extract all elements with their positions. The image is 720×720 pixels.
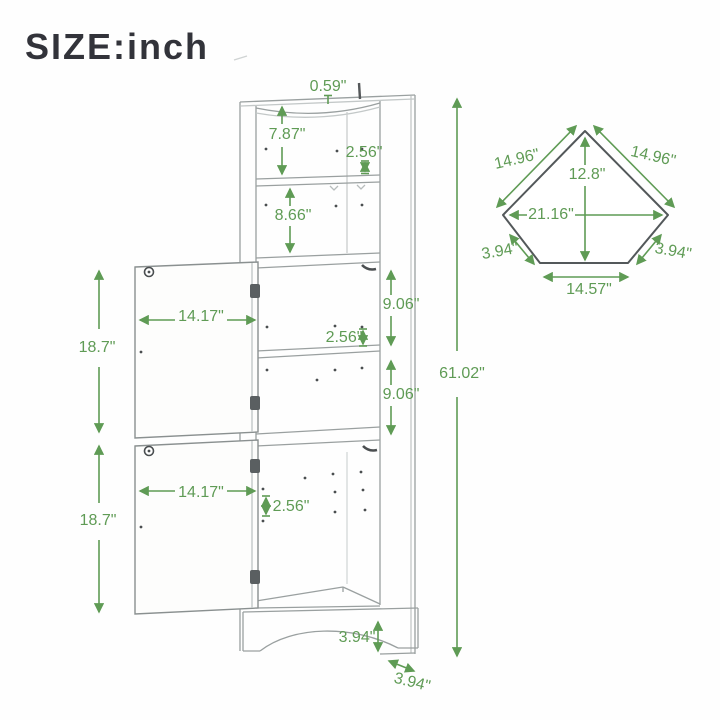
dim-second-shelf-height: 8.66" bbox=[275, 208, 312, 224]
dim-upper-door-width: 14.17" bbox=[178, 309, 224, 325]
size-diagram-canvas: SIZE:inch bbox=[0, 0, 720, 720]
dim-base-height: 3.94" bbox=[339, 630, 376, 646]
dim-middle-hole-spacing: 2.56" bbox=[326, 330, 363, 346]
dim-middle-shelf-height-1: 9.06" bbox=[383, 297, 420, 313]
diagram-sketch bbox=[0, 0, 720, 720]
dim-top-shelf-height: 7.87" bbox=[269, 127, 306, 143]
dim-lower-door-width: 14.17" bbox=[178, 485, 224, 501]
dim-top-hole-spacing: 2.56" bbox=[346, 145, 383, 161]
dim-lower-door-height: 18.7" bbox=[80, 513, 117, 529]
dim-max-width: 21.16" bbox=[528, 207, 574, 223]
dim-lower-hole-spacing: 2.56" bbox=[273, 499, 310, 515]
dim-front-width: 14.57" bbox=[566, 282, 612, 298]
dim-top-thickness: 0.59" bbox=[310, 79, 347, 95]
cabinet-front-sketch bbox=[234, 56, 418, 654]
dim-depth: 12.8" bbox=[569, 167, 606, 183]
dim-total-height: 61.02" bbox=[439, 366, 485, 382]
dim-upper-door-height: 18.7" bbox=[79, 340, 116, 356]
dim-middle-shelf-height-2: 9.06" bbox=[383, 387, 420, 403]
